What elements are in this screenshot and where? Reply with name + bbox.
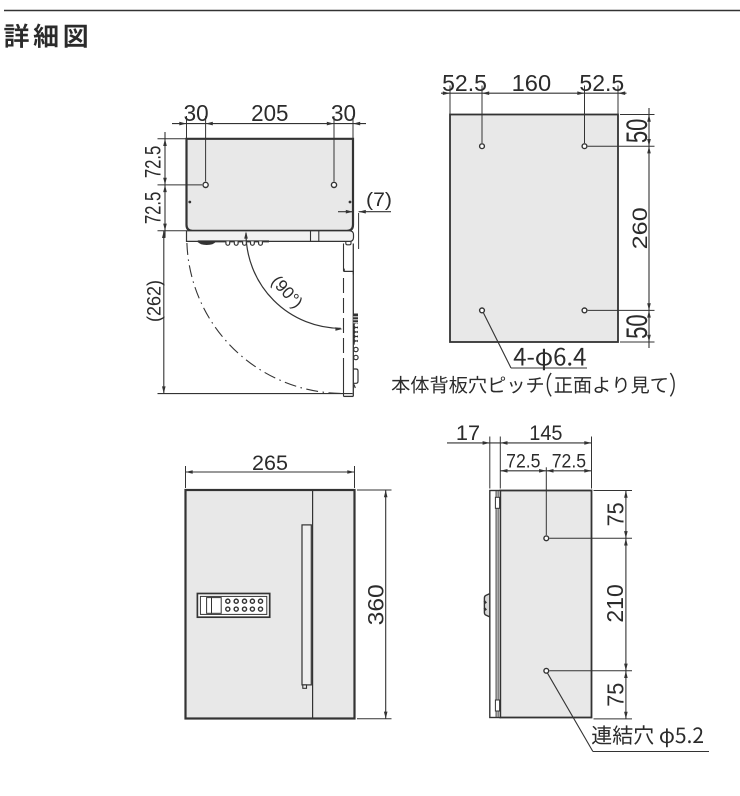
svg-text:145: 145	[529, 420, 562, 445]
svg-text:50: 50	[621, 314, 654, 339]
svg-text:(90°): (90°)	[267, 272, 306, 312]
svg-text:72.5: 72.5	[506, 451, 540, 472]
svg-text:160: 160	[512, 70, 552, 96]
svg-text:210: 210	[602, 584, 628, 623]
svg-text:72.5: 72.5	[552, 451, 586, 472]
svg-text:17: 17	[456, 420, 480, 445]
svg-text:75: 75	[602, 502, 628, 526]
svg-text:52.5: 52.5	[579, 70, 624, 96]
svg-text:(262): (262)	[143, 280, 165, 322]
svg-text:265: 265	[252, 451, 288, 475]
svg-text:75: 75	[602, 683, 628, 707]
svg-text:260: 260	[628, 207, 652, 249]
svg-text:72.5: 72.5	[140, 146, 165, 179]
svg-text:205: 205	[251, 100, 288, 126]
svg-text:30: 30	[184, 100, 209, 126]
svg-text:(7): (7)	[366, 189, 392, 211]
svg-text:30: 30	[331, 100, 356, 126]
svg-text:72.5: 72.5	[140, 192, 165, 225]
svg-text:50: 50	[621, 119, 654, 144]
svg-text:52.5: 52.5	[442, 70, 487, 96]
svg-text:360: 360	[363, 584, 388, 625]
